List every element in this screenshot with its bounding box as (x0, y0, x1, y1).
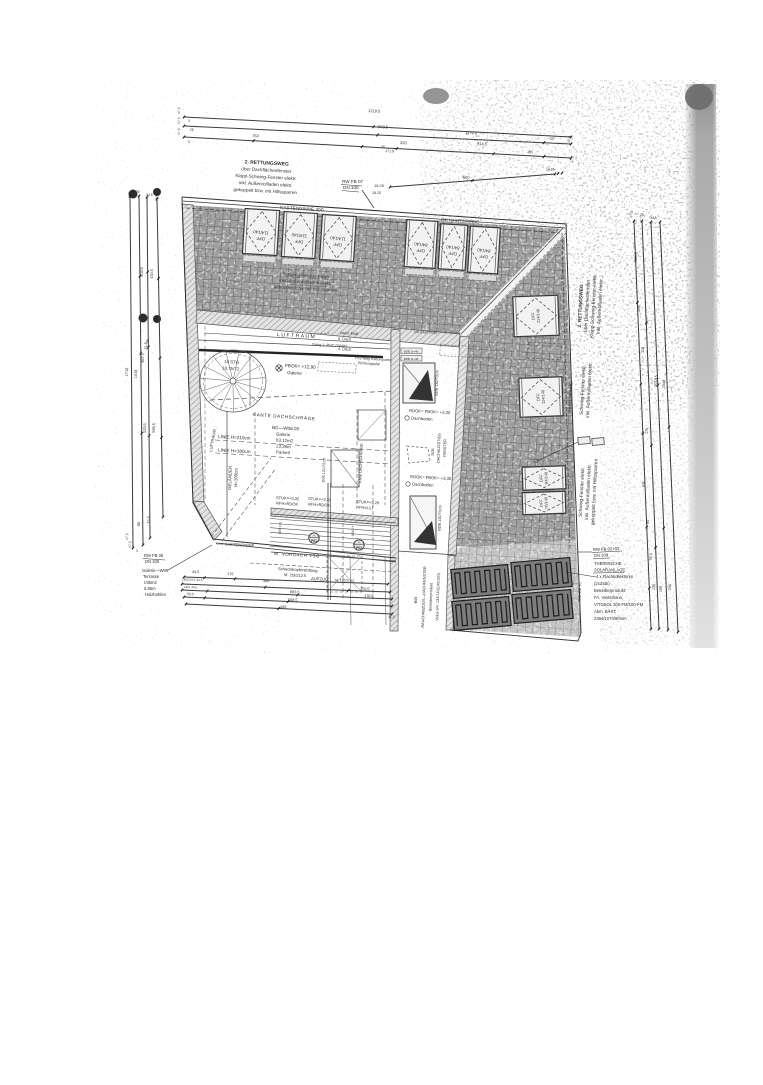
svg-text:1018.5: 1018.5 (654, 375, 659, 387)
svg-text:Galerie: Galerie (276, 432, 291, 438)
svg-text:DFF: DFF (448, 250, 457, 256)
svg-text:630: 630 (642, 481, 646, 488)
svg-text:Terrasse: Terrasse (143, 574, 160, 579)
svg-text:RW FB 06: RW FB 06 (144, 553, 164, 558)
svg-text:FENSTER: FENSTER (443, 439, 448, 457)
svg-text:883.5: 883.5 (290, 590, 300, 594)
svg-text:388: 388 (263, 579, 269, 583)
svg-text:179: 179 (645, 428, 649, 435)
svg-text:293: 293 (400, 140, 408, 145)
svg-text:185: 185 (527, 150, 533, 154)
svg-text:1018: 1018 (134, 370, 138, 379)
svg-text:18.5 43.5: 18.5 43.5 (184, 585, 198, 589)
svg-text:178.5: 178.5 (364, 594, 374, 598)
svg-text:Abm. B/H/T:: Abm. B/H/T: (594, 609, 616, 614)
svg-text:5.85m: 5.85m (144, 586, 156, 591)
svg-text:DFF: DFF (256, 235, 265, 241)
svg-text:DFF: DFF (416, 247, 425, 253)
svg-text:DN 100: DN 100 (594, 552, 609, 558)
svg-text:3: 3 (188, 119, 190, 123)
svg-text:Parkett: Parkett (276, 450, 291, 456)
svg-text:B08: B08 (414, 597, 418, 604)
svg-text:+: + (313, 534, 315, 538)
svg-text:t.85m2: t.85m2 (144, 580, 157, 585)
svg-text:DFF: DFF (294, 238, 303, 244)
svg-text:533.5: 533.5 (143, 423, 147, 433)
svg-text:31.5: 31.5 (144, 342, 148, 350)
svg-text:593.5: 593.5 (378, 124, 389, 130)
svg-text:31.5: 31.5 (388, 615, 395, 619)
svg-text:560: 560 (463, 174, 471, 180)
svg-text:ROHRE 70: ROHRE 70 (578, 582, 583, 601)
svg-text:Holzbohlen: Holzbohlen (145, 592, 167, 597)
svg-text:34.5: 34.5 (650, 216, 657, 220)
svg-text:RW FB 07: RW FB 07 (342, 179, 364, 184)
svg-text:72.5: 72.5 (147, 516, 151, 524)
svg-text:43.5: 43.5 (192, 570, 200, 574)
svg-text:RFH=L1J: RFH=L1J (356, 505, 373, 511)
svg-text:303.5: 303.5 (634, 252, 639, 262)
svg-text:1048: 1048 (662, 380, 667, 389)
svg-text:178: 178 (637, 306, 641, 313)
svg-text:170.5: 170.5 (360, 587, 370, 591)
svg-text:1179.5: 1179.5 (465, 130, 478, 136)
svg-text:Betreiberprodukt:: Betreiberprodukt: (594, 588, 626, 593)
svg-text:M. 188.5/1t3: M. 188.5/1t3 (335, 578, 354, 583)
svg-text:171.5: 171.5 (385, 149, 394, 153)
svg-text:B08 131: B08 131 (278, 522, 282, 534)
svg-text:H=100cm: H=100cm (233, 468, 239, 487)
svg-text:17.3: 17.3 (567, 136, 572, 143)
svg-text:84/140: 84/140 (543, 471, 548, 484)
svg-text:34.5: 34.5 (146, 193, 153, 197)
svg-text:17.5: 17.5 (177, 117, 181, 124)
svg-text:135: 135 (652, 584, 656, 591)
svg-text:763: 763 (252, 133, 260, 138)
svg-text:4 x Flachkollektoren: 4 x Flachkollektoren (596, 574, 634, 579)
svg-text:18.25: 18.25 (372, 191, 381, 195)
svg-text:6. Dach: 6. Dach (338, 337, 351, 342)
svg-text:70/140: 70/140 (543, 496, 548, 509)
svg-text:514.5: 514.5 (477, 141, 488, 147)
svg-text:598.5: 598.5 (152, 423, 156, 433)
svg-text:GELÄNDER: GELÄNDER (227, 466, 233, 490)
svg-text:114/140: 114/140 (535, 308, 541, 323)
svg-text:BDB 2t+40: BDB 2t+40 (404, 357, 419, 361)
svg-text:25: 25 (640, 213, 644, 217)
svg-text:3: 3 (188, 140, 190, 144)
svg-text:16 STG: 16 STG (224, 359, 240, 365)
svg-text:-50.5: -50.5 (186, 592, 194, 596)
svg-text:25: 25 (190, 128, 194, 132)
svg-text:VITOSOL 200-FM/100-FM: VITOSOL 200-FM/100-FM (594, 602, 644, 607)
svg-text:449: 449 (280, 605, 286, 609)
svg-text:3: 3 (136, 549, 138, 553)
svg-text:19,25: 19,25 (546, 167, 555, 172)
svg-text:17.5: 17.5 (177, 107, 181, 114)
svg-text:25: 25 (550, 137, 554, 141)
svg-text:+: + (358, 541, 360, 545)
svg-text:155: 155 (659, 586, 663, 593)
svg-text:17.5: 17.5 (128, 541, 132, 548)
svg-text:17.5: 17.5 (125, 533, 129, 540)
svg-text:114/140: 114/140 (540, 389, 546, 404)
svg-text:35: 35 (155, 196, 159, 200)
svg-text:95: 95 (646, 520, 650, 525)
svg-text:85: 85 (137, 522, 141, 526)
svg-text:SOLARANLAGE: SOLARANLAGE (594, 568, 625, 573)
svg-text:4. Dach: 4. Dach (338, 347, 351, 352)
svg-text:17.5: 17.5 (629, 211, 633, 218)
svg-text:176: 176 (227, 572, 233, 576)
svg-text:17.2: 17.2 (570, 156, 575, 163)
svg-text:118: 118 (641, 347, 645, 353)
svg-text:1219.5: 1219.5 (368, 108, 381, 114)
svg-text:18.5/24.5 34.5: 18.5/24.5 34.5 (182, 578, 203, 583)
svg-text:(2x2Stk): (2x2Stk) (594, 581, 610, 586)
svg-text:P02: P02 (356, 546, 362, 550)
svg-text:18,75/72: 18,75/72 (222, 366, 240, 372)
svg-text:1718: 1718 (125, 368, 129, 377)
svg-text:THERMISCHE: THERMISCHE (594, 561, 622, 566)
svg-text:DFF: DFF (333, 241, 342, 247)
svg-text:598.5: 598.5 (288, 598, 298, 602)
svg-text:b3.12m2: b3.12m2 (276, 438, 294, 444)
svg-text:D08: D08 (431, 448, 435, 455)
svg-text:DFF: DFF (479, 253, 488, 259)
svg-text:25: 25 (136, 190, 140, 194)
svg-text:2394/1070/90mm: 2394/1070/90mm (594, 616, 627, 621)
svg-text:430.5: 430.5 (150, 269, 154, 279)
svg-text:18.25: 18.25 (374, 183, 385, 188)
svg-text:Galerie—W08: Galerie—W08 (142, 568, 169, 573)
svg-text:987.5: 987.5 (141, 353, 145, 363)
svg-text:D08 77: D08 77 (351, 526, 355, 537)
svg-text:603.5: 603.5 (140, 267, 144, 277)
svg-text:Galerie: Galerie (287, 370, 303, 376)
svg-text:17.5: 17.5 (177, 128, 181, 135)
svg-text:76.5: 76.5 (649, 553, 654, 561)
svg-text:240: 240 (668, 584, 672, 591)
svg-text:FA. Viessmann,: FA. Viessmann, (594, 595, 623, 600)
svg-text:P01: P01 (311, 539, 317, 543)
svg-text:DN 100: DN 100 (145, 559, 160, 564)
svg-text:BDB 2t+40: BDB 2t+40 (404, 350, 419, 354)
